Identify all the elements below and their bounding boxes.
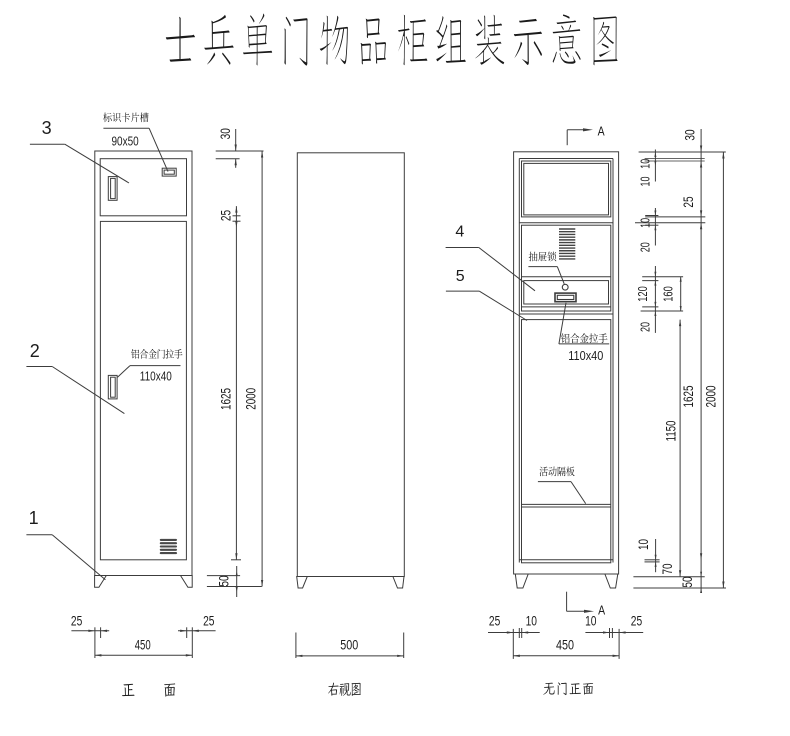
svg-text:1: 1 — [29, 508, 39, 528]
svg-text:25: 25 — [71, 614, 82, 629]
svg-text:30: 30 — [683, 129, 698, 140]
svg-text:70: 70 — [660, 564, 675, 575]
svg-text:1625: 1625 — [681, 386, 696, 408]
svg-text:90x50: 90x50 — [112, 135, 139, 149]
svg-text:30: 30 — [218, 128, 233, 139]
svg-text:25: 25 — [489, 614, 500, 629]
svg-text:50: 50 — [217, 575, 232, 586]
svg-text:20: 20 — [638, 322, 652, 332]
svg-text:2000: 2000 — [244, 388, 259, 410]
svg-text:A: A — [598, 604, 606, 618]
svg-text:3: 3 — [42, 118, 52, 138]
svg-text:5: 5 — [456, 268, 465, 285]
svg-text:10: 10 — [526, 614, 537, 629]
svg-text:25: 25 — [203, 614, 214, 629]
svg-text:2: 2 — [30, 341, 40, 361]
svg-text:10: 10 — [585, 614, 596, 629]
svg-text:50: 50 — [680, 576, 695, 587]
svg-text:10: 10 — [638, 218, 652, 228]
svg-text:120: 120 — [636, 286, 650, 302]
svg-text:110x40: 110x40 — [140, 370, 172, 384]
svg-text:1625: 1625 — [218, 388, 233, 410]
svg-text:4: 4 — [455, 224, 464, 241]
svg-text:10: 10 — [638, 176, 652, 186]
svg-text:450: 450 — [556, 638, 574, 653]
svg-text:25: 25 — [218, 210, 233, 221]
svg-text:500: 500 — [340, 638, 358, 653]
svg-text:20: 20 — [638, 242, 652, 252]
svg-text:1150: 1150 — [664, 421, 679, 442]
svg-text:10: 10 — [636, 539, 651, 550]
svg-text:2000: 2000 — [704, 386, 719, 408]
svg-text:25: 25 — [681, 196, 696, 207]
svg-text:10: 10 — [638, 159, 652, 169]
svg-text:25: 25 — [631, 614, 642, 629]
svg-text:450: 450 — [135, 638, 151, 653]
svg-text:160: 160 — [662, 286, 676, 302]
svg-text:110x40: 110x40 — [568, 349, 603, 363]
svg-text:A: A — [598, 124, 606, 138]
